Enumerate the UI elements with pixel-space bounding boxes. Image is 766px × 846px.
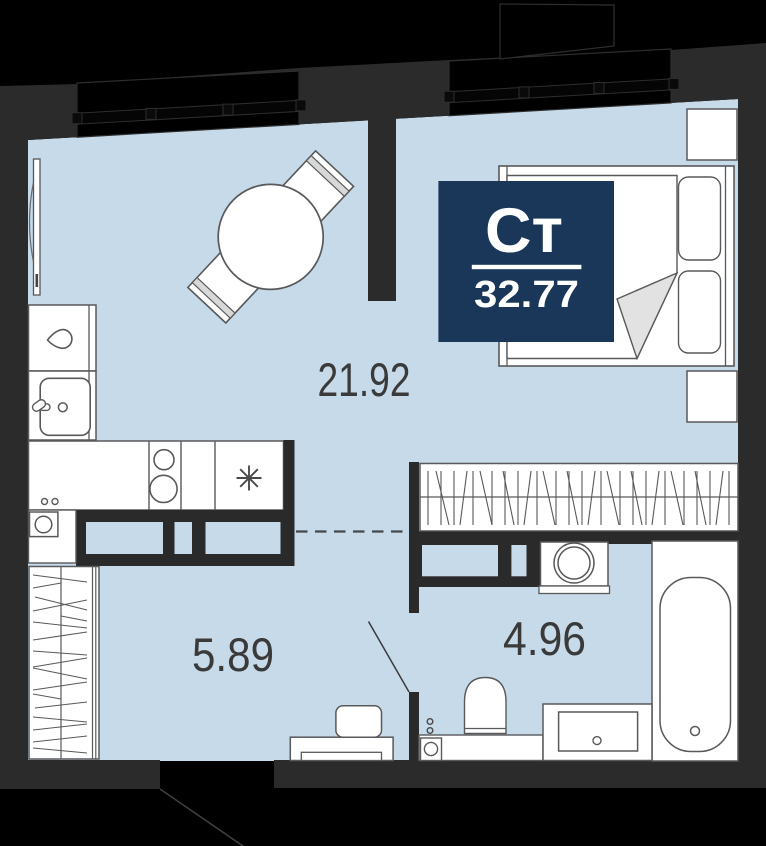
svg-text:32.77: 32.77 [474,274,579,316]
svg-text:5.89: 5.89 [192,629,274,682]
svg-text:21.92: 21.92 [318,354,411,407]
svg-text:4.96: 4.96 [503,613,586,666]
svg-text:Ст: Ст [485,196,563,266]
